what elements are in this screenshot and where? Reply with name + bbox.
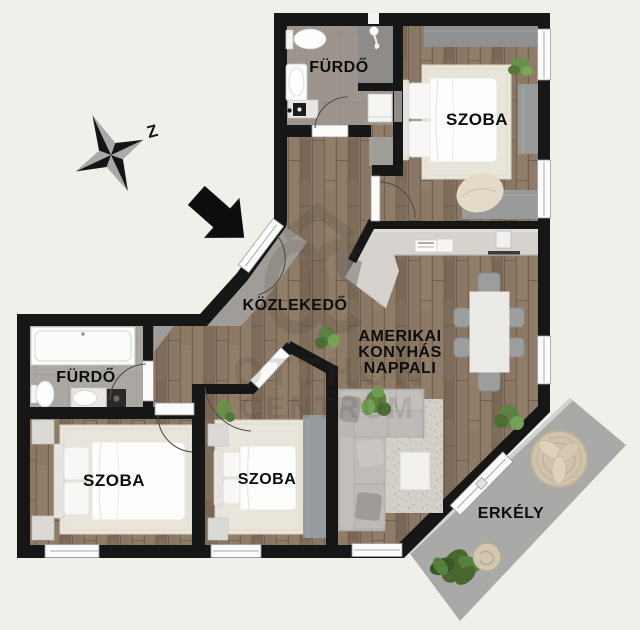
svg-text:ERKÉLY: ERKÉLY [478, 503, 544, 522]
svg-text:SZOBA: SZOBA [446, 110, 508, 129]
svg-text:FÜRDŐ: FÜRDŐ [309, 57, 368, 76]
svg-text:SZOBA: SZOBA [238, 471, 297, 488]
svg-text:NAPPALI: NAPPALI [364, 360, 437, 377]
svg-text:AMERIKAI: AMERIKAI [358, 328, 441, 345]
svg-text:KONYHÁS: KONYHÁS [358, 342, 442, 361]
svg-text:KÖZLEKEDŐ: KÖZLEKEDŐ [243, 295, 348, 314]
svg-text:FÜRDŐ: FÜRDŐ [56, 367, 115, 386]
svg-text:CENTRUM: CENTRUM [240, 390, 416, 425]
svg-text:SZOBA: SZOBA [83, 471, 145, 490]
